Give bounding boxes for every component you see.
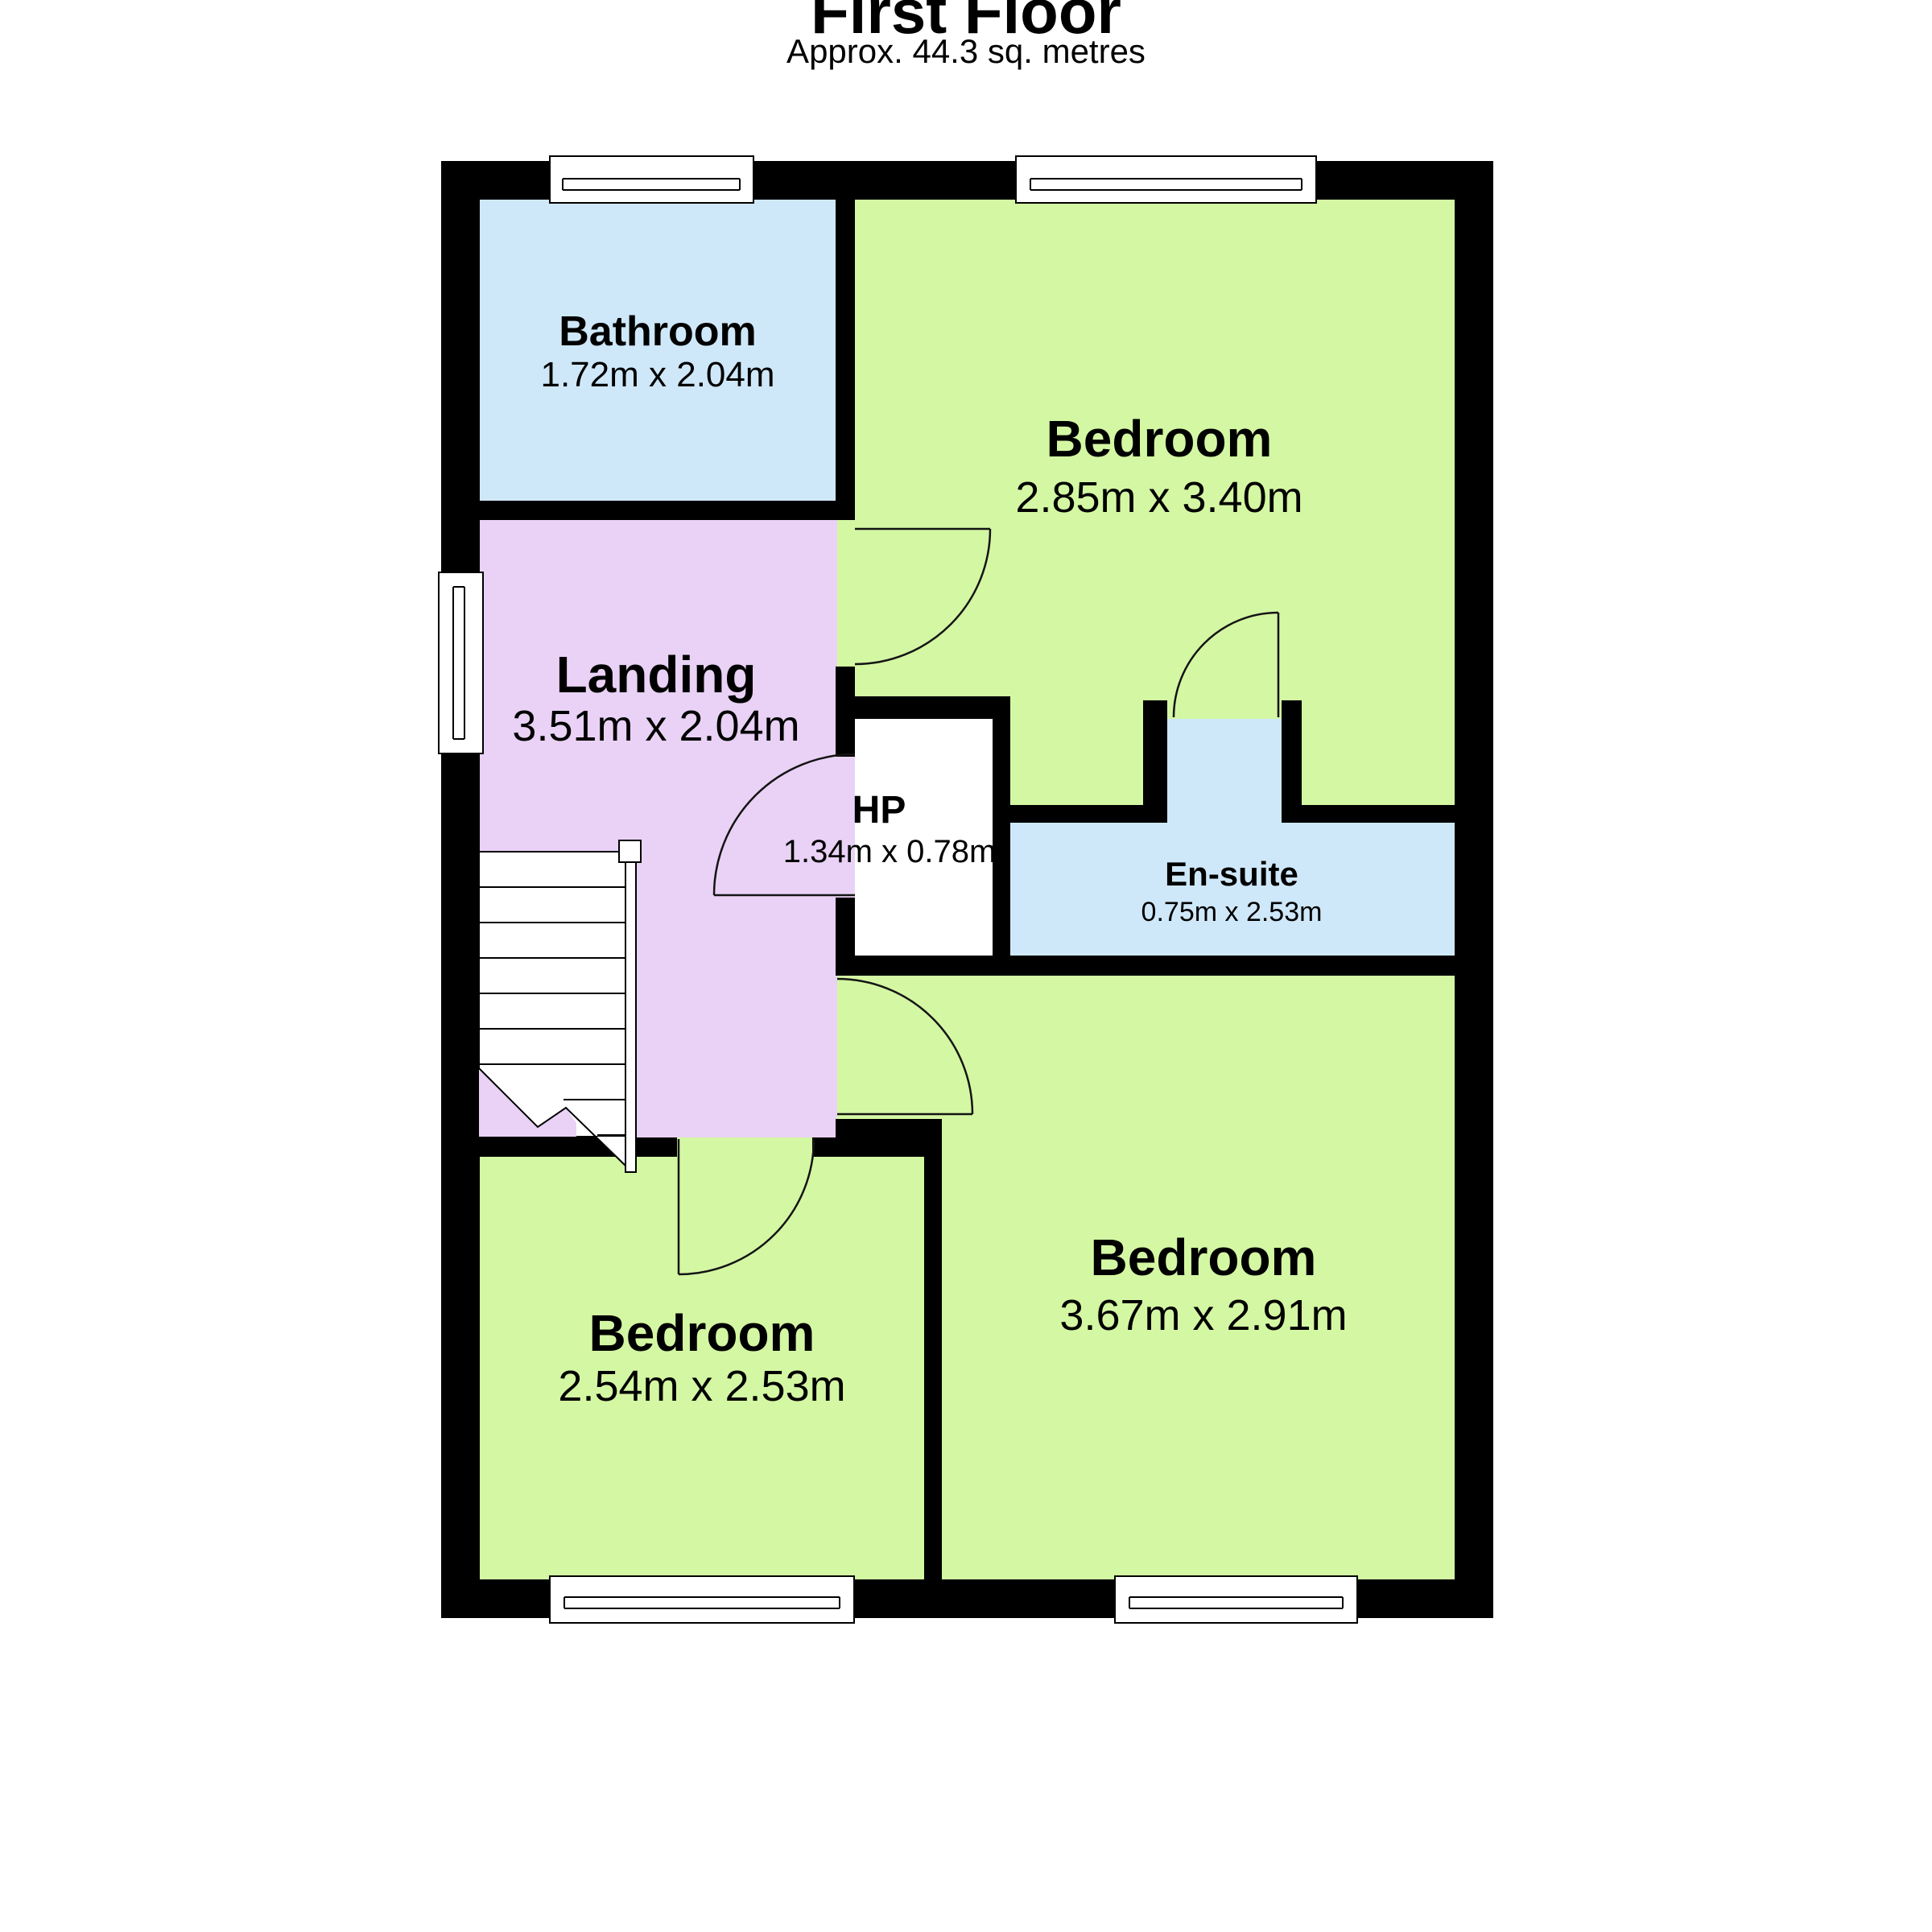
window-bedroom2 [1115,1576,1357,1623]
bedroom1-label: Bedroom [1046,413,1273,464]
door-bedroom1 [855,529,990,664]
staircase [479,840,641,1172]
ensuite-dims: 0.75m x 2.53m [1141,898,1323,926]
bedroom3-label: Bedroom [589,1307,815,1359]
bedroom3-dims: 2.54m x 2.53m [558,1364,845,1408]
hp-label: HP [852,791,906,830]
bathroom-dims: 1.72m x 2.04m [540,357,774,393]
bedroom1-dims: 2.85m x 3.40m [1015,476,1302,519]
window-bedroom3 [550,1576,854,1623]
stairs-newel-post [619,840,641,862]
landing-label: Landing [556,649,757,700]
door-bedroom2 [837,979,972,1114]
door-ensuite [1174,613,1278,717]
ensuite-label: En-suite [1165,857,1298,891]
window-bathroom [550,156,753,203]
window-landing [439,572,483,753]
bedroom2-label: Bedroom [1091,1232,1317,1283]
bedroom2-dims: 3.67m x 2.91m [1059,1294,1347,1337]
bathroom-label: Bathroom [559,311,757,353]
hp-dims: 1.34m x 0.78m [783,836,997,868]
door-hp [714,754,855,895]
window-bedroom1 [1016,156,1316,203]
stairs-handrail [625,850,636,1172]
plan-linework [0,0,1932,1932]
floorplan-page: First Floor Approx. 44.3 sq. metres [0,0,1932,1932]
landing-dims: 3.51m x 2.04m [512,704,799,748]
door-bedroom3 [679,1139,814,1274]
